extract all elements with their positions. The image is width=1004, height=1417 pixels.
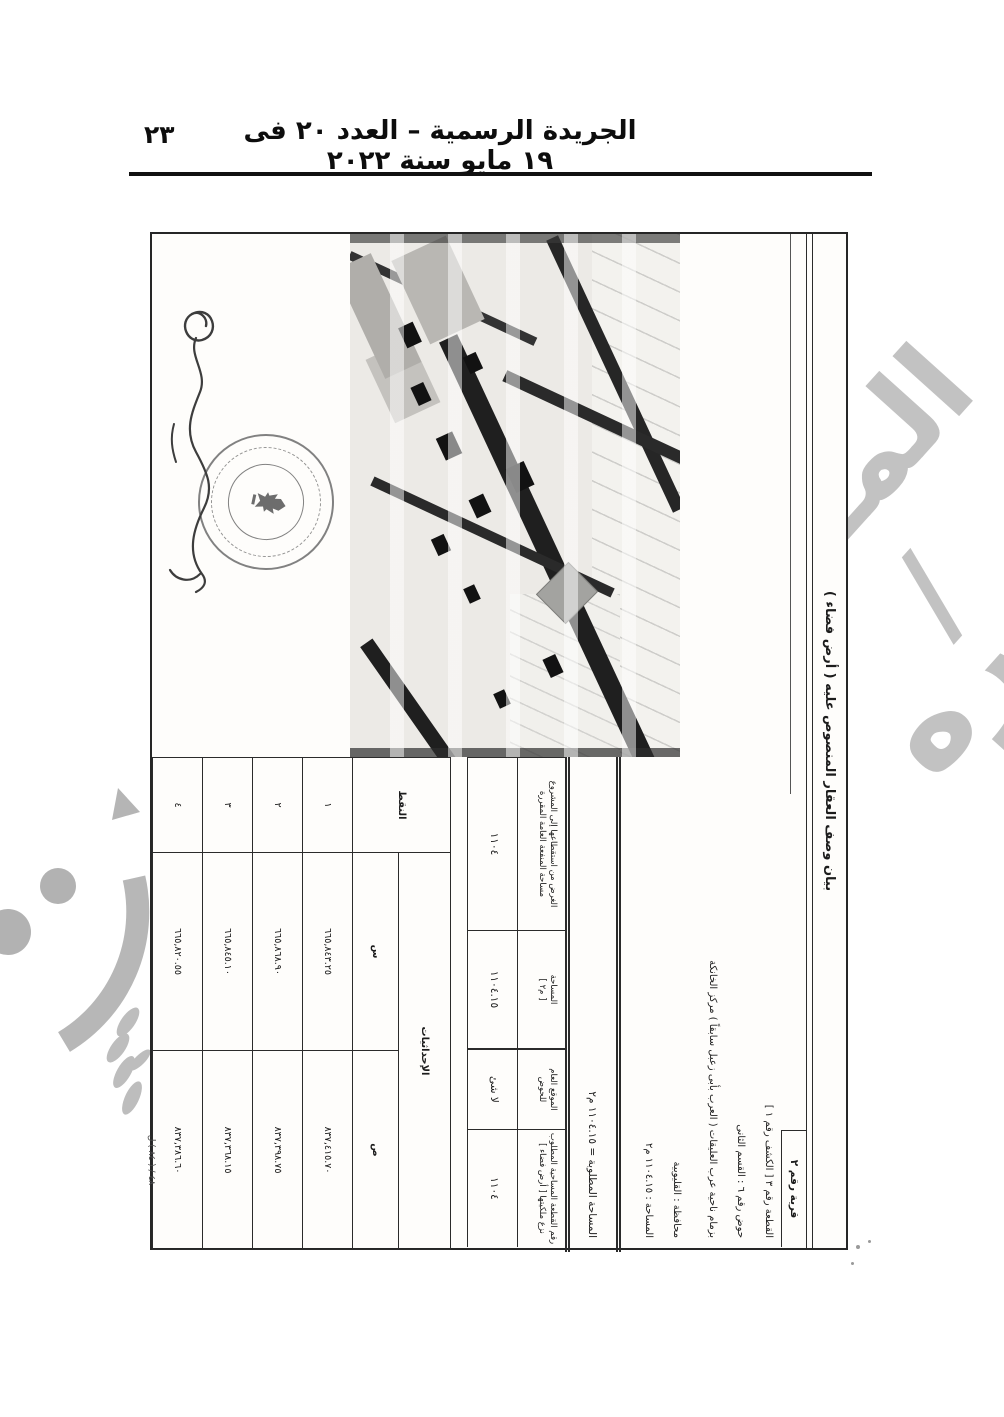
- rotated-document: بيان وصف العقار المنصوص عليه ( أرض فضاء …: [150, 232, 848, 1250]
- header-line: الموقع العام: [548, 1068, 558, 1110]
- header-line: [ م٢ ]: [537, 979, 547, 1001]
- doc-title: بيان وصف العقار المنصوص عليه ( أرض فضاء …: [812, 234, 846, 1248]
- header-line: مساحة المنفعة العامة المقررة: [537, 791, 547, 897]
- description-line: محافظة : القليوبية: [671, 1162, 682, 1238]
- header-line: رقم القطعة المساحية المطلوب: [548, 1133, 558, 1244]
- description-line: حوض رقم ٦ : القسم الثانى: [735, 1124, 746, 1238]
- page-number: ٢٣: [144, 120, 175, 149]
- description-line: القطعة رقم ٣ [ الكشف رقم ١ ]: [763, 1105, 774, 1238]
- document-box: بيان وصف العقار المنصوص عليه ( أرض فضاء …: [150, 232, 848, 1250]
- x-value-cell: ٦٦٥,٨٤٥.١٠: [203, 853, 253, 1051]
- header-rule: [129, 172, 872, 176]
- summary-line: المساحة المطلوبة = ١١٠٤.١٥ م٢: [565, 757, 621, 1252]
- parcel-header-cell: الموقع العام للحوض: [517, 1049, 565, 1130]
- point-cell: ٢: [253, 758, 303, 853]
- parcel-header-cell: رقم القطعة المساحية المطلوب نزع ملكيتها …: [517, 1130, 565, 1247]
- aerial-photo: [350, 234, 680, 757]
- y-value-cell: ٨٣٧,٣٨٦.٦٠: [153, 1051, 203, 1250]
- header-line: للحوض: [537, 1077, 547, 1103]
- description-line: بزمام ناحية عرب العليقات ( العرب بأبى زع…: [707, 960, 718, 1238]
- scan-speck: [856, 1245, 860, 1249]
- scan-streaks: [350, 234, 680, 757]
- points-label-cell: النقط: [353, 758, 451, 853]
- point-cell: ٣: [203, 758, 253, 853]
- print-mark: ٤٨ / ( ٨٤ ) ل: [140, 1108, 156, 1212]
- y-label-cell: ص: [353, 1051, 399, 1250]
- point-cell: ٤: [153, 758, 203, 853]
- header-line: نزع ملكيتها [ أرض فضاء ]: [537, 1143, 547, 1234]
- parcel-value-cell: لا شئ: [467, 1049, 517, 1130]
- y-value-cell: ٨٣٧,٣٦٨.١٥: [203, 1051, 253, 1250]
- signature-scribble: [152, 274, 226, 604]
- coords-row: ٤ ٦٦٥,٨٢٠.٥٥ ٨٣٧,٣٨٦.٦٠: [153, 758, 203, 1250]
- rule-line: [806, 234, 807, 1248]
- coordinates-table: النقط الإحداثيات س ص ١ ٦٦٥,٨٤٣.٢٥ ٨٣٧,٤١…: [152, 757, 451, 1250]
- parcel-header-cell: الغرض من استقطاعها إلى المشروع مساحة الم…: [517, 757, 565, 930]
- description-line: المساحة : ١١٠٤.١٥ م٢: [643, 1143, 654, 1238]
- gazette-title: الجريدة الرسمية – العدد ٢٠ فى ١٩ مايو سن…: [225, 116, 655, 168]
- header-line: الغرض من استقطاعها إلى المشروع: [548, 781, 558, 908]
- header-line: المساحة: [548, 975, 558, 1005]
- coords-row: ١ ٦٦٥,٨٤٣.٢٥ ٨٣٧,٤١٥.٧٠: [303, 758, 353, 1250]
- description-block: القطعة رقم ٣ [ الكشف رقم ١ ] حوض رقم ٦ :…: [621, 759, 786, 1246]
- x-value-cell: ٦٦٥,٨٦٨.٩٠: [253, 853, 303, 1051]
- x-label-cell: س: [353, 853, 399, 1051]
- coords-label-cell: الإحداثيات: [399, 853, 451, 1250]
- gazette-page: { "page": { "header": { "gazette_title":…: [0, 0, 1004, 1417]
- rule-line: [790, 234, 791, 794]
- parcel-header-cell: المساحة [ م٢ ]: [517, 930, 565, 1049]
- y-value-cell: ٨٣٧,٣٩٨.٧٥: [253, 1051, 303, 1250]
- scan-speck: [868, 1240, 871, 1243]
- y-value-cell: ٨٣٧,٤١٥.٧٠: [303, 1051, 353, 1250]
- parcel-value-cell: ١١٠٤: [467, 757, 517, 930]
- coords-row: ٣ ٦٦٥,٨٤٥.١٠ ٨٣٧,٣٦٨.١٥: [203, 758, 253, 1250]
- x-value-cell: ٦٦٥,٨٢٠.٥٥: [153, 853, 203, 1051]
- parcel-value-cell: ١١٠٤.١٥: [467, 930, 517, 1049]
- parcel-value-cell: ١١٠٤: [467, 1130, 517, 1247]
- x-value-cell: ٦٦٥,٨٤٣.٢٥: [303, 853, 353, 1051]
- coords-row: ٢ ٦٦٥,٨٦٨.٩٠ ٨٣٧,٣٩٨.٧٥: [253, 758, 303, 1250]
- scan-speck: [851, 1262, 854, 1265]
- point-cell: ١: [303, 758, 353, 853]
